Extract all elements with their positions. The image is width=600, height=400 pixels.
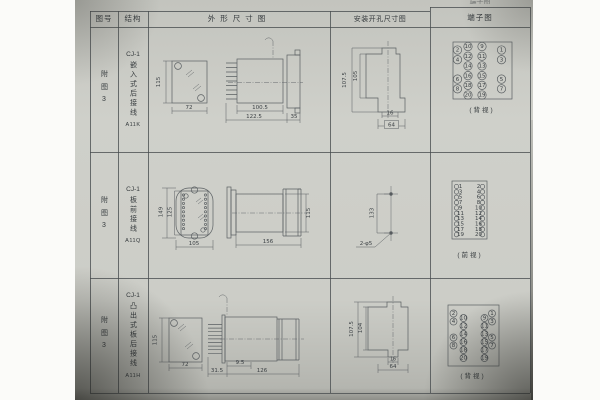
row3-mount-drawing: 107.5 104 16 64 xyxy=(330,278,430,393)
row1-structure-text: 嵌入式后接线 xyxy=(130,61,137,118)
svg-text:12: 12 xyxy=(465,54,472,60)
svg-text:17: 17 xyxy=(479,83,486,89)
header-mount-dims: 安装开孔尺寸图 xyxy=(330,14,430,24)
row3-code: A11H xyxy=(125,373,140,379)
svg-text:6: 6 xyxy=(452,335,456,341)
svg-text:2-φ5: 2-φ5 xyxy=(360,241,373,247)
svg-text:10: 10 xyxy=(460,316,467,322)
header-outline-dims: 外形尺寸图 xyxy=(148,13,330,24)
table-bottom-border xyxy=(90,393,530,394)
row2-code: A11Q xyxy=(125,238,141,244)
svg-text:18: 18 xyxy=(460,348,467,354)
svg-text:5: 5 xyxy=(490,335,494,341)
svg-text:12: 12 xyxy=(460,324,467,330)
row2-structure-text: 板前接线 xyxy=(130,196,137,234)
svg-text:105: 105 xyxy=(353,70,359,81)
svg-text:4: 4 xyxy=(456,57,460,63)
svg-text:107.5: 107.5 xyxy=(349,321,355,337)
svg-text:19: 19 xyxy=(457,232,464,238)
row2-terminal-diagram: 1357911131517192468101214161820 xyxy=(430,152,530,278)
svg-text:15: 15 xyxy=(481,340,488,346)
row2-terminal-pins: 1357911131517192468101214161820 xyxy=(454,184,484,238)
header-terminal-diagram: 端子图 xyxy=(430,12,530,23)
row2-fig-label: 附图3 xyxy=(101,196,108,235)
svg-text:107.5: 107.5 xyxy=(342,72,348,88)
svg-text:18: 18 xyxy=(465,83,472,89)
photo-of-datasheet-page: { "header": { "col_fig": "图号", "col_stru… xyxy=(0,0,600,400)
svg-text:16: 16 xyxy=(387,111,394,117)
row2-terminal-view-label: (前视) xyxy=(420,249,520,259)
svg-text:31.5: 31.5 xyxy=(211,368,224,374)
row3-structure-cell: CJ-1 凸出式板后接线 A11H xyxy=(118,278,148,393)
row2-model: CJ-1 xyxy=(126,186,140,193)
svg-text:64: 64 xyxy=(388,123,395,129)
svg-text:10: 10 xyxy=(465,44,472,50)
svg-text:16: 16 xyxy=(460,340,467,346)
cropped-page-header-text: 端子图 xyxy=(430,0,530,4)
table-sheet: 端子图 图号 结构 外形尺寸图 安装开孔尺寸图 端子图 附图3 CJ-1 嵌入式… xyxy=(0,0,600,400)
svg-text:13: 13 xyxy=(481,332,488,338)
svg-text:125: 125 xyxy=(168,206,174,217)
row1-terminal-view-label: (背视) xyxy=(432,104,532,114)
svg-text:11: 11 xyxy=(479,54,486,60)
svg-text:35: 35 xyxy=(291,114,298,120)
row3-terminal-view-label: (背视) xyxy=(423,370,523,380)
svg-text:105: 105 xyxy=(189,241,200,247)
svg-text:156: 156 xyxy=(263,239,274,245)
row3-structure-text: 凸出式板后接线 xyxy=(130,302,137,369)
row2-structure-cell: CJ-1 板前接线 A11Q xyxy=(118,152,148,278)
svg-text:8: 8 xyxy=(452,343,456,349)
svg-text:133: 133 xyxy=(370,207,376,218)
svg-text:9: 9 xyxy=(480,44,484,50)
svg-text:64: 64 xyxy=(390,364,397,370)
row2-mount-drawing: 133 2-φ5 xyxy=(330,152,430,278)
svg-text:9: 9 xyxy=(483,316,487,322)
svg-text:14: 14 xyxy=(460,332,467,338)
svg-text:14: 14 xyxy=(465,64,472,70)
row1-terminal-pins: 1091211141316151817201921436587 xyxy=(453,42,505,99)
row3-model: CJ-1 xyxy=(126,292,140,299)
svg-text:2: 2 xyxy=(452,311,456,317)
svg-text:20: 20 xyxy=(460,356,467,362)
svg-text:104: 104 xyxy=(358,322,364,333)
header-fig-number: 图号 xyxy=(90,13,118,24)
svg-text:6: 6 xyxy=(456,77,460,83)
svg-text:16: 16 xyxy=(390,357,396,363)
table-top-border-col5 xyxy=(430,7,530,8)
svg-text:16: 16 xyxy=(465,73,472,79)
svg-text:9.5: 9.5 xyxy=(236,360,245,366)
row1-outline-drawing: 115 72 100.5 122.5 35 xyxy=(148,27,330,152)
svg-text:72: 72 xyxy=(186,105,193,111)
row1-mount-drawing: 107.5 105 16 64 xyxy=(330,27,430,152)
svg-text:72: 72 xyxy=(182,362,189,368)
row3-terminal-pins: 1091211141316151817201921436587 xyxy=(450,310,496,362)
header-structure: 结构 xyxy=(118,13,148,24)
svg-text:122.5: 122.5 xyxy=(246,114,262,120)
svg-text:115: 115 xyxy=(153,334,159,345)
svg-text:115: 115 xyxy=(156,76,162,87)
row3-fig-cell: 附图3 xyxy=(90,278,118,393)
svg-text:149: 149 xyxy=(159,206,165,217)
svg-text:8: 8 xyxy=(456,87,460,93)
row3-outline-drawing: 115 72 9.5 31.5 126 xyxy=(148,278,330,393)
row1-fig-cell: 附图3 xyxy=(90,27,118,152)
row1-fig-label: 附图3 xyxy=(101,70,108,109)
svg-text:7: 7 xyxy=(490,343,494,349)
svg-text:19: 19 xyxy=(481,356,488,362)
svg-text:17: 17 xyxy=(481,348,488,354)
row2-outline-drawing: 149 125 105 156 115 xyxy=(148,152,330,278)
paper-right-edge-shadow xyxy=(531,120,533,400)
svg-text:2: 2 xyxy=(456,48,460,54)
table-top-border xyxy=(90,11,430,12)
svg-text:4: 4 xyxy=(452,319,456,325)
row1-code: A11K xyxy=(125,122,140,128)
svg-text:3: 3 xyxy=(490,319,494,325)
svg-text:115: 115 xyxy=(306,207,312,218)
svg-text:3: 3 xyxy=(500,57,504,63)
svg-text:13: 13 xyxy=(479,64,486,70)
svg-text:126: 126 xyxy=(257,368,268,374)
svg-text:1: 1 xyxy=(490,311,494,317)
svg-text:100.5: 100.5 xyxy=(252,105,268,111)
row1-model: CJ-1 xyxy=(126,51,140,58)
svg-text:19: 19 xyxy=(479,93,486,99)
row1-terminal-diagram: 1091211141316151817201921436587 xyxy=(430,27,530,152)
paper-page: 端子图 图号 结构 外形尺寸图 安装开孔尺寸图 端子图 附图3 CJ-1 嵌入式… xyxy=(75,0,533,400)
svg-text:1: 1 xyxy=(500,48,504,54)
row2-fig-cell: 附图3 xyxy=(90,152,118,278)
svg-text:11: 11 xyxy=(481,324,488,330)
svg-text:7: 7 xyxy=(500,87,504,93)
svg-text:20: 20 xyxy=(475,232,482,238)
svg-text:5: 5 xyxy=(500,77,504,83)
svg-text:20: 20 xyxy=(465,93,472,99)
row3-fig-label: 附图3 xyxy=(101,316,108,355)
svg-text:15: 15 xyxy=(479,73,486,79)
row1-structure-cell: CJ-1 嵌入式后接线 A11K xyxy=(118,27,148,152)
